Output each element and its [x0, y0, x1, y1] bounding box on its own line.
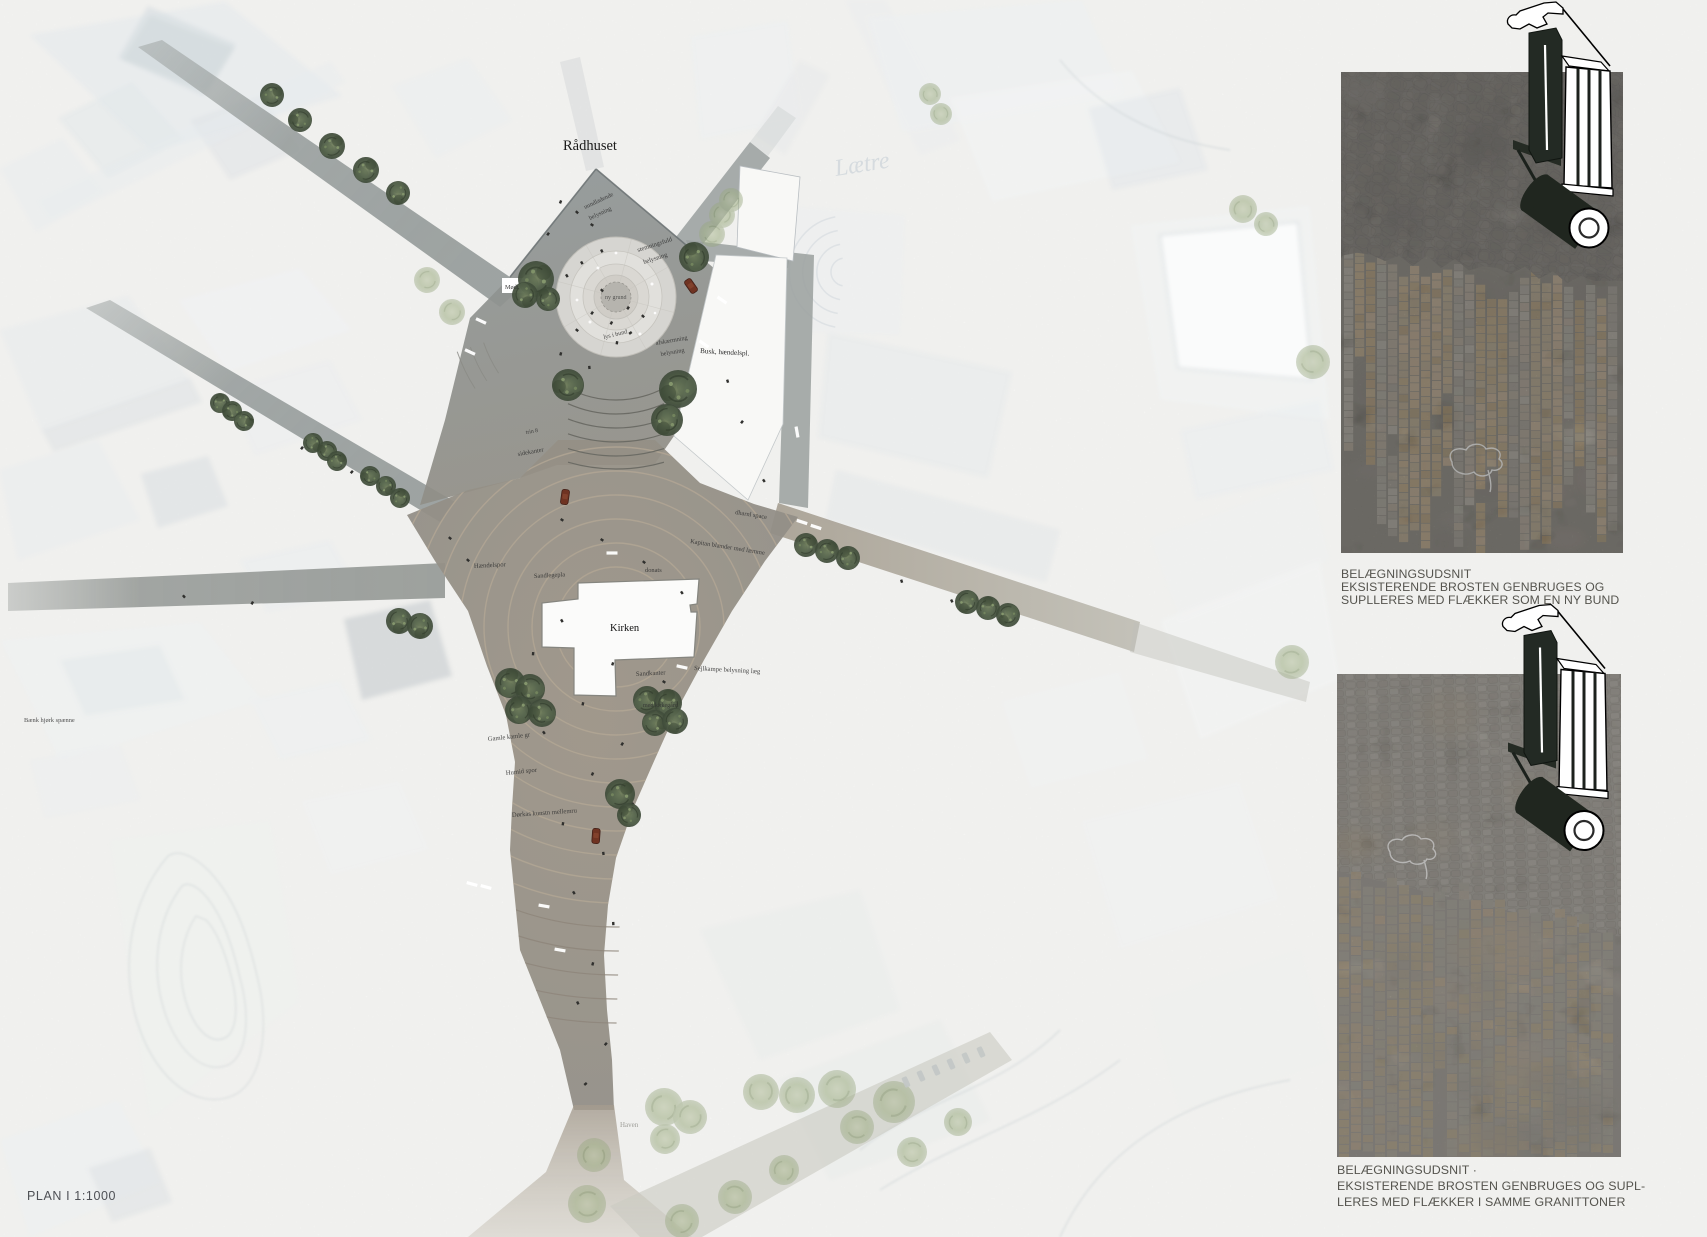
- svg-text:Kirken: Kirken: [610, 623, 640, 634]
- svg-text:EKSISTERENDE BROSTEN GENBRUGES: EKSISTERENDE BROSTEN GENBRUGES OG: [1341, 580, 1604, 594]
- svg-text:SUPLLERES MED FLÆKKER SOM EN N: SUPLLERES MED FLÆKKER SOM EN NY BUND: [1341, 593, 1619, 607]
- svg-text:BELÆGNINGSUDSNIT ·: BELÆGNINGSUDSNIT ·: [1337, 1163, 1477, 1177]
- svg-text:Mødt: Mødt: [505, 284, 519, 291]
- svg-text:med kirkegård: med kirkegård: [643, 702, 678, 709]
- svg-text:Rådhuset: Rådhuset: [563, 138, 617, 154]
- svg-text:EKSISTERENDE BROSTEN GENBRUGES: EKSISTERENDE BROSTEN GENBRUGES OG SUPL-: [1337, 1179, 1645, 1193]
- svg-text:LERES MED FLÆKKER I SAMME GRAN: LERES MED FLÆKKER I SAMME GRANITTONER: [1337, 1195, 1626, 1209]
- svg-text:BELÆGNINGSUDSNIT: BELÆGNINGSUDSNIT: [1341, 567, 1472, 581]
- svg-text:Haven: Haven: [620, 1121, 639, 1129]
- svg-text:Bænk hjørk spænne: Bænk hjørk spænne: [24, 717, 75, 724]
- svg-text:PLAN I 1:1000: PLAN I 1:1000: [27, 1189, 116, 1203]
- svg-text:donats: donats: [645, 567, 662, 574]
- svg-text:ny grund: ny grund: [605, 295, 627, 301]
